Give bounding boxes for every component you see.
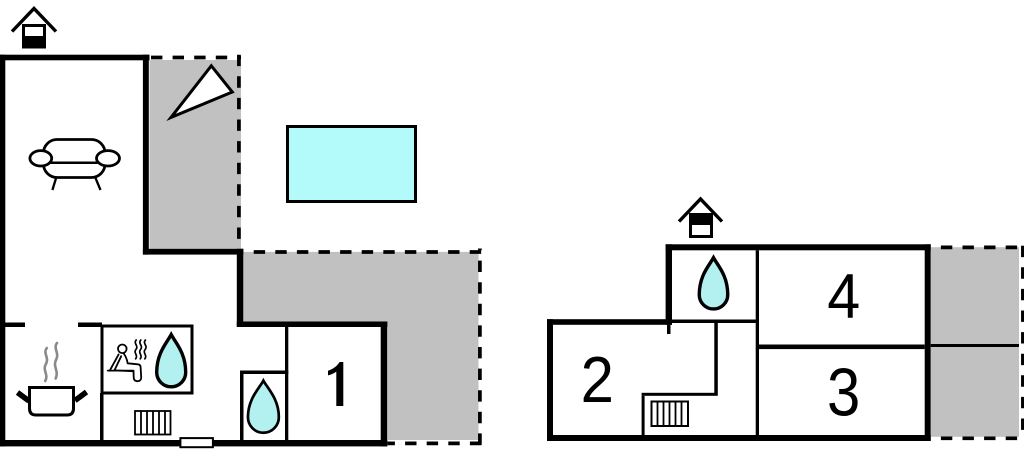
svg-text:4: 4 [827,261,860,331]
svg-text:3: 3 [827,354,860,430]
svg-text:2: 2 [581,344,614,417]
